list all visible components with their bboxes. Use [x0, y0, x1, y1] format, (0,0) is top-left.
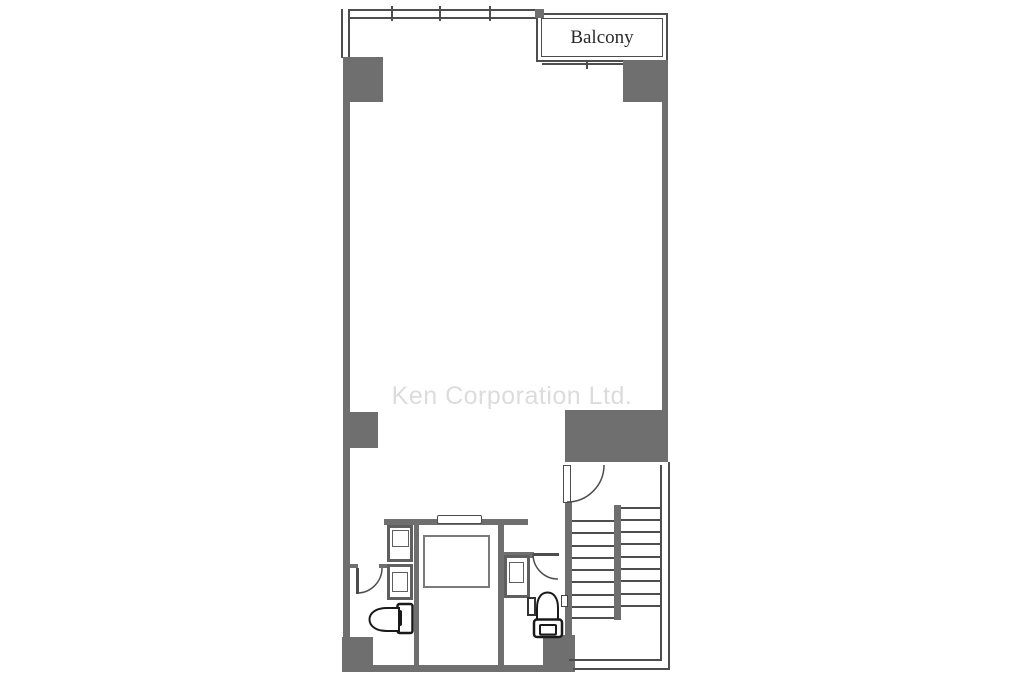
block-bottom-left — [342, 637, 373, 667]
wall-niche — [561, 595, 568, 607]
column-top-left — [343, 57, 383, 102]
elevator-door — [437, 515, 482, 524]
stair-outline-right-inner — [660, 465, 662, 661]
stair-hall-door-leaf — [563, 465, 571, 503]
stair-tread — [572, 606, 614, 608]
window-mullion-tick — [489, 6, 491, 21]
floor-plan: Ken Corporation Ltd. Balcony — [0, 0, 1024, 683]
toilet-flush-right — [540, 625, 556, 635]
stair-tread — [621, 519, 660, 521]
stair-tread — [621, 531, 660, 533]
wall-left — [343, 57, 350, 672]
stair-tread — [572, 581, 614, 583]
fixture-basin-right — [509, 562, 524, 583]
stair-tread — [572, 594, 614, 596]
balcony: Balcony — [536, 13, 668, 62]
column-top-right — [623, 60, 668, 102]
left-bath-door-arc — [357, 568, 382, 593]
right-bath-door-leaf — [533, 553, 559, 556]
toilet-bowl-right — [537, 593, 558, 622]
wall-stair-left — [565, 502, 572, 637]
fixture-basin-left-upper — [392, 530, 409, 547]
stair-tread — [621, 568, 660, 570]
right-bath-door-arc — [533, 554, 558, 579]
balcony-label: Balcony — [570, 27, 633, 49]
stair-tread — [621, 605, 660, 607]
stair-stringer — [614, 505, 621, 620]
stair-outline-right-outer — [668, 462, 670, 670]
stair-tread — [621, 507, 660, 509]
stair-tread — [621, 556, 660, 558]
stair-outline-bottom-outer — [573, 668, 670, 670]
stair-tread — [572, 617, 614, 619]
window-mullion-tick — [391, 6, 393, 21]
toilet-bowl-left — [370, 608, 400, 631]
fixture-basin-left-lower — [392, 572, 408, 592]
wall-left-bath-stub-right — [379, 564, 387, 568]
stair-tread — [621, 543, 660, 545]
left-corner-window — [341, 9, 350, 58]
wall-joint-block — [535, 9, 544, 18]
stair-tread — [572, 520, 614, 522]
elevator-car — [423, 535, 490, 588]
stair-hall-door-arc — [567, 465, 604, 502]
stair-outline-bottom-inner — [569, 659, 662, 661]
partition-panel — [527, 597, 536, 616]
stair-tread — [572, 532, 614, 534]
toilet-flush-left — [393, 611, 401, 625]
stair-tread — [621, 593, 660, 595]
stair-tread — [572, 557, 614, 559]
window-mullion-tick — [439, 6, 441, 21]
stair-tread — [621, 580, 660, 582]
wall-right — [662, 102, 668, 410]
block-bottom-mid — [543, 635, 575, 667]
column-mid-left — [343, 412, 378, 448]
toilet-tank-left — [398, 604, 413, 633]
left-bath-door-leaf — [356, 568, 359, 594]
wall-bottom — [342, 665, 575, 672]
stair-tread — [572, 569, 614, 571]
wall-shaft-left — [414, 519, 419, 665]
balcony-railing: Balcony — [541, 18, 663, 57]
block-mid-right — [565, 410, 668, 462]
stair-tread — [572, 545, 614, 547]
watermark-text: Ken Corporation Ltd. — [0, 382, 1024, 411]
